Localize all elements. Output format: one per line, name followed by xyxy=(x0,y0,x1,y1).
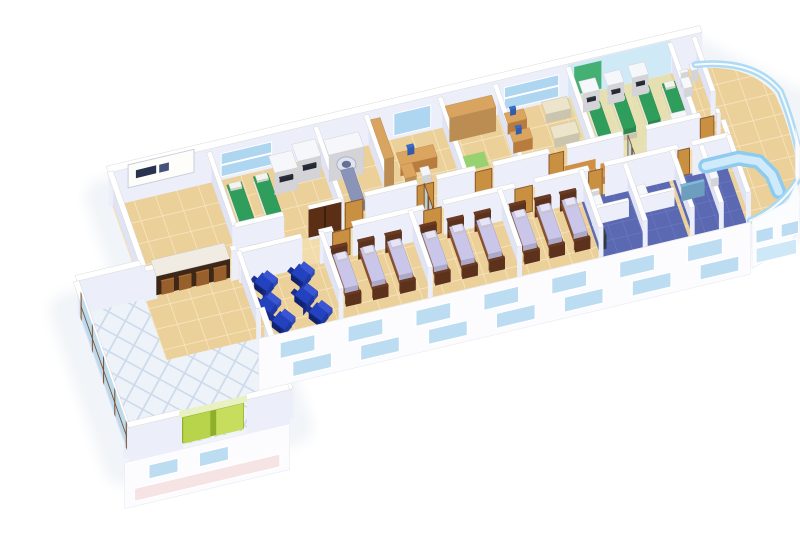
counter-panel xyxy=(196,269,209,287)
floorplan-illustration xyxy=(0,0,800,550)
hospital-floorplan-3d-render xyxy=(0,0,800,550)
counter-panel xyxy=(178,273,191,291)
counter-panel xyxy=(161,277,174,295)
counter-panel xyxy=(213,265,226,283)
computer-monitor xyxy=(406,144,414,156)
ct-scanner-bore-inner xyxy=(342,161,351,168)
computer-monitor xyxy=(509,106,516,116)
computer-monitor xyxy=(515,125,522,135)
